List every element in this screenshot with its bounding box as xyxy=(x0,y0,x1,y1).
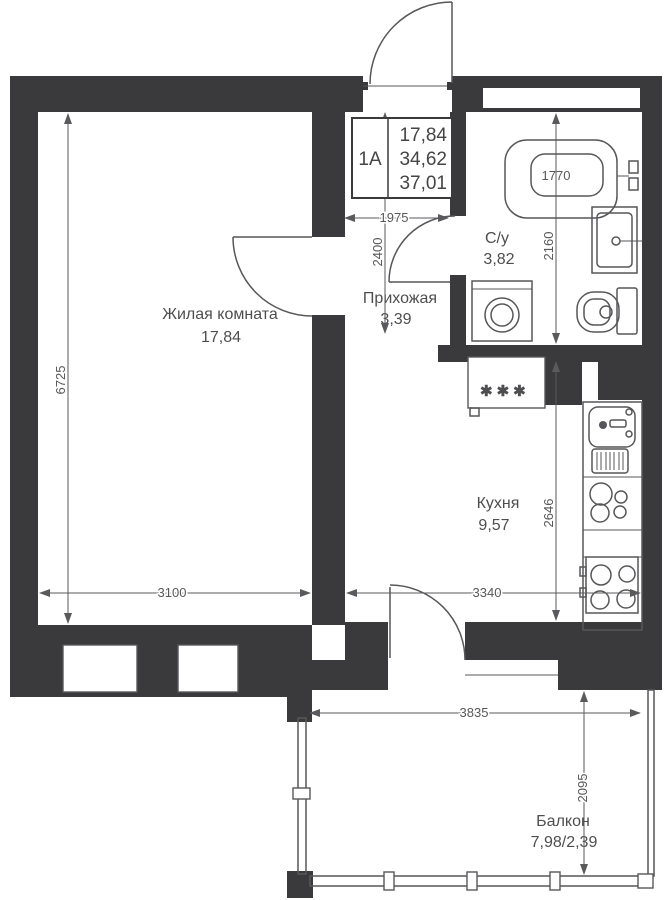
entry-jamb-right xyxy=(447,82,452,90)
bathroom-door xyxy=(389,216,455,282)
kitchen-label: Кухня xyxy=(477,495,520,512)
bathroom-area: 3,82 xyxy=(483,251,514,268)
wall-living-lower xyxy=(312,315,345,625)
refrigerator: ✱✱✱ xyxy=(468,357,545,416)
dim-hallway-depth: 2400 xyxy=(370,238,385,267)
unit-living-area: 17,84 xyxy=(399,125,447,146)
wall-niche xyxy=(483,88,640,108)
wall-bath-lower xyxy=(450,275,466,345)
mullion xyxy=(293,788,310,799)
mullion xyxy=(384,872,394,890)
wall-duct-left xyxy=(545,362,582,405)
wall-kitchen-bottom-left xyxy=(345,622,388,660)
glazing-right xyxy=(648,690,654,876)
dim-kitchen-width: 3340 xyxy=(473,585,502,600)
window-living-1 xyxy=(63,645,137,692)
floor-plan: ✱✱✱ xyxy=(0,0,668,900)
balcony-pier xyxy=(287,660,312,722)
dim-bathtub-length: 1770 xyxy=(542,168,571,183)
wall-right xyxy=(642,76,662,660)
wall-duct-right xyxy=(598,362,642,400)
hallway-label: Прихожая xyxy=(363,290,437,307)
mullion-corner xyxy=(638,874,653,888)
dim-bathroom-depth: 2160 xyxy=(541,232,556,261)
bathroom-label: С/у xyxy=(485,230,509,247)
kitchen-area: 9,57 xyxy=(478,517,509,534)
mullion xyxy=(550,872,560,890)
unit-number: 1А xyxy=(358,149,382,170)
window-living-2 xyxy=(178,645,238,692)
dim-hallway-width: 1975 xyxy=(380,210,409,225)
wall-top-left xyxy=(10,76,363,112)
balcony-glazing xyxy=(293,690,654,890)
walls xyxy=(10,76,662,898)
washing-machine xyxy=(472,281,532,341)
dim-balcony-depth: 2095 xyxy=(575,774,590,803)
dim-living-width: 3100 xyxy=(158,585,187,600)
floor-plan-drawing: ✱✱✱ xyxy=(0,0,668,900)
living-room-door xyxy=(233,237,312,316)
balcony-label: Балкон xyxy=(536,813,590,830)
cookware xyxy=(590,483,627,522)
dim-kitchen-depth: 2646 xyxy=(541,499,556,528)
wall-living-upper xyxy=(312,112,345,237)
unit-total-area: 37,01 xyxy=(399,173,447,194)
wall-kitchen-bottom-right xyxy=(465,622,662,660)
wall-outer-band-left xyxy=(310,660,388,690)
dim-balcony-width: 3835 xyxy=(460,705,489,720)
drying-rack xyxy=(592,449,628,473)
toilet xyxy=(577,288,637,334)
wall-living-bottom xyxy=(10,625,312,697)
living-room-label: Жилая комната xyxy=(162,306,278,323)
wall-outer-band-right xyxy=(558,660,662,690)
living-room-area: 17,84 xyxy=(201,329,241,346)
unit-usable-area: 34,62 xyxy=(399,149,447,170)
dim-living-depth: 6725 xyxy=(53,366,68,395)
glazing-bottom xyxy=(310,876,652,886)
entrance-door xyxy=(363,2,452,86)
wall-left xyxy=(10,76,38,697)
mullion xyxy=(467,872,477,890)
stove xyxy=(580,557,638,613)
balcony-door xyxy=(390,585,465,660)
refrigerator-symbol: ✱✱✱ xyxy=(480,383,530,400)
kitchen-sink xyxy=(589,407,635,447)
balcony-area: 7,98/2,39 xyxy=(531,834,598,851)
title-block: 1А 17,84 34,62 37,01 xyxy=(352,118,452,198)
balcony-corner-post xyxy=(287,871,313,898)
